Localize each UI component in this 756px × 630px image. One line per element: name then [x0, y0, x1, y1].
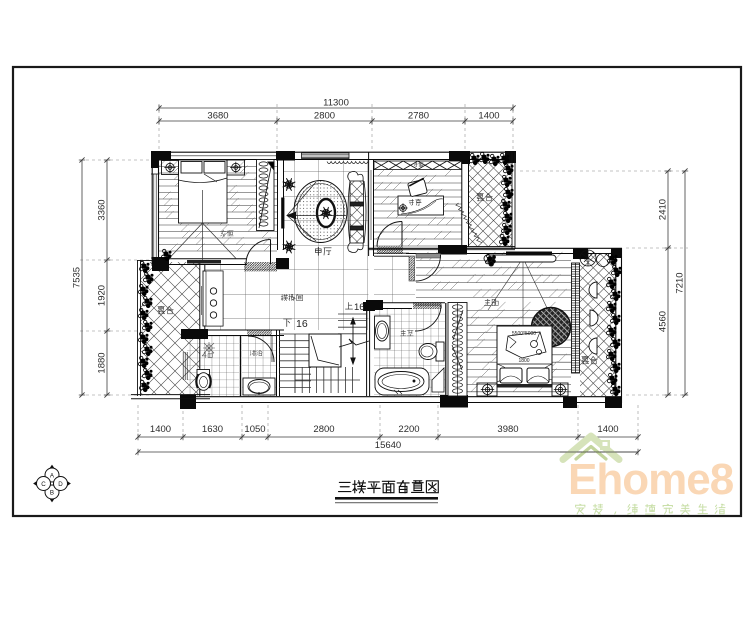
- svg-text:7210: 7210: [675, 272, 686, 293]
- svg-text:15640: 15640: [375, 440, 401, 451]
- svg-text:2800: 2800: [314, 111, 335, 122]
- svg-text:1630: 1630: [202, 424, 223, 435]
- svg-text:7535: 7535: [72, 267, 83, 288]
- svg-text:D: D: [58, 481, 63, 488]
- svg-text:Ehome8: Ehome8: [568, 455, 734, 504]
- svg-text:5500*5000: 5500*5000: [512, 331, 536, 337]
- svg-text:C: C: [41, 481, 46, 488]
- svg-text:16: 16: [354, 302, 365, 313]
- svg-text:4560: 4560: [658, 311, 669, 332]
- svg-text:2780: 2780: [408, 111, 429, 122]
- svg-text:1400: 1400: [150, 424, 171, 435]
- svg-text:3980: 3980: [497, 424, 518, 435]
- svg-text:11300: 11300: [323, 98, 349, 109]
- svg-text:3360: 3360: [97, 199, 108, 220]
- svg-text:1050: 1050: [244, 424, 265, 435]
- svg-text:1880: 1880: [97, 352, 108, 373]
- svg-text:1400: 1400: [597, 424, 618, 435]
- svg-text:3680: 3680: [207, 111, 228, 122]
- svg-text:B: B: [50, 490, 54, 497]
- svg-text:2410: 2410: [658, 199, 669, 220]
- svg-text:2800: 2800: [313, 424, 334, 435]
- svg-text:1920: 1920: [97, 285, 108, 306]
- svg-text:1800: 1800: [518, 358, 529, 364]
- svg-text:16: 16: [296, 318, 308, 330]
- svg-text:1400: 1400: [478, 111, 499, 122]
- svg-text:2200: 2200: [398, 424, 419, 435]
